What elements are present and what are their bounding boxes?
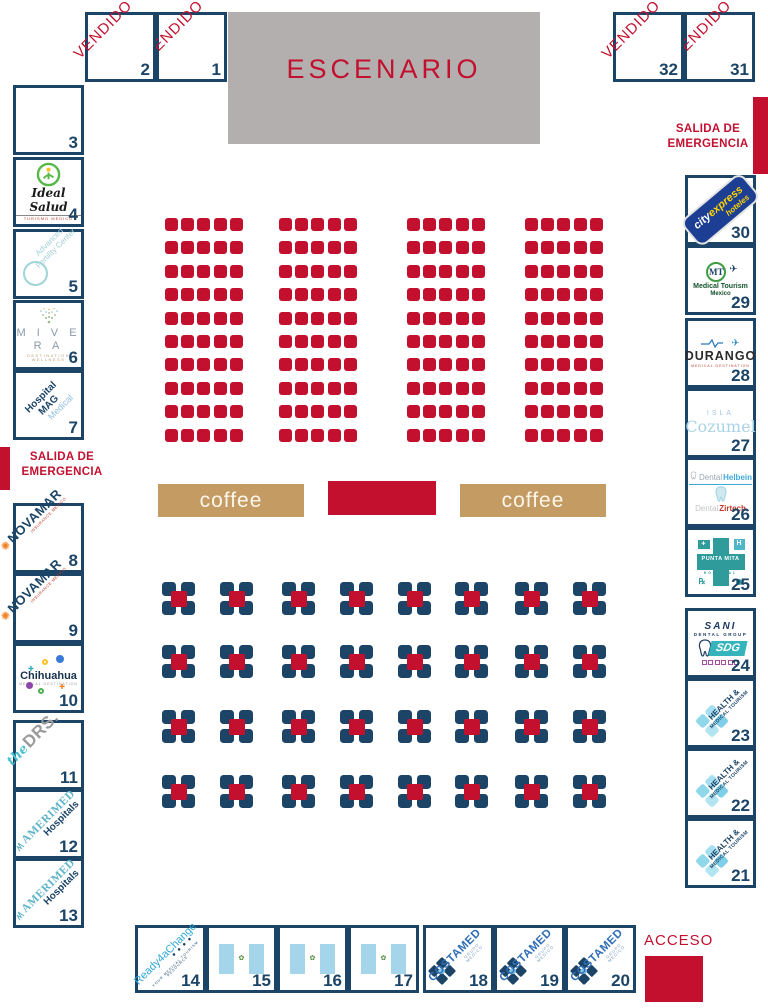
seat: [557, 405, 570, 418]
table-cluster: [455, 775, 488, 808]
seat: [439, 335, 452, 348]
seat: [557, 382, 570, 395]
seat: [590, 335, 603, 348]
booth-number: 19: [540, 971, 559, 991]
seat: [230, 405, 243, 418]
seat: [439, 288, 452, 301]
seat: [311, 241, 324, 254]
booth-18: COSTAMEDGRUPO MEDICO18: [423, 925, 494, 993]
seat: [456, 218, 469, 231]
exhibitor-name: Advanced Fertility Center: [27, 220, 79, 272]
seat: [456, 241, 469, 254]
table-cluster: [515, 645, 548, 678]
booth-13: AMERIMEDHospitals13: [13, 858, 84, 928]
hospital-mag-logo: Hospital MAGMedical: [3, 359, 94, 450]
seat: [328, 241, 341, 254]
table: [349, 719, 365, 735]
seat: [541, 382, 554, 395]
table: [524, 654, 540, 670]
seat: [311, 218, 324, 231]
booth-10: ✚✚ChihuahuaMEDICAL DESTINATION10: [13, 643, 84, 713]
seat: [557, 358, 570, 371]
seat: [456, 265, 469, 278]
table: [407, 719, 423, 735]
seat: [541, 265, 554, 278]
seat: [279, 218, 292, 231]
booth-number: 1: [212, 60, 221, 80]
seat: [165, 405, 178, 418]
exhibitor-name-2: Helbein: [723, 473, 752, 482]
seat: [311, 382, 324, 395]
seat: [541, 405, 554, 418]
table: [582, 654, 598, 670]
seat: [590, 241, 603, 254]
seating-block: [165, 218, 243, 442]
exhibitor-name-3: Dental: [695, 504, 718, 513]
exhibitor-name: PUNTA MITA: [697, 556, 745, 562]
booth-number: 7: [69, 418, 78, 438]
seat: [279, 405, 292, 418]
seat: [590, 358, 603, 371]
seating-block: [279, 218, 357, 442]
seat: [197, 382, 210, 395]
seat: [407, 312, 420, 325]
seat: [181, 241, 194, 254]
seat: [295, 405, 308, 418]
table-cluster: [340, 710, 373, 743]
seat: [574, 265, 587, 278]
seat: [197, 312, 210, 325]
table: [291, 591, 307, 607]
seat: [456, 358, 469, 371]
seat: [407, 405, 420, 418]
seat: [328, 265, 341, 278]
table-cluster: [162, 775, 195, 808]
yellow-ring-icon: [42, 659, 48, 665]
seat: [328, 358, 341, 371]
seat: [230, 358, 243, 371]
seat: [472, 335, 485, 348]
seat: [557, 429, 570, 442]
booth-23: HEALTH &MEDICAL TOURISM23: [685, 678, 756, 748]
seat: [525, 288, 538, 301]
seat: [197, 241, 210, 254]
booth-number: 20: [611, 971, 630, 991]
seat: [311, 288, 324, 301]
seat: [328, 312, 341, 325]
costamed-logo: COSTAMEDGRUPO MEDICO: [556, 914, 646, 1004]
seat: [407, 358, 420, 371]
seat: [525, 382, 538, 395]
access-entrance-block: [645, 956, 703, 1002]
seat: [439, 241, 452, 254]
seat: [525, 335, 538, 348]
seat: [230, 241, 243, 254]
table-cluster: [573, 582, 606, 615]
seat: [472, 218, 485, 231]
access-label: ACCESO: [644, 932, 704, 949]
seat: [181, 405, 194, 418]
seat: [456, 288, 469, 301]
booth-31: VENDIDO31: [684, 12, 755, 82]
seat: [279, 241, 292, 254]
seat: [407, 288, 420, 301]
seat: [525, 312, 538, 325]
teal-plus-icon: ✚: [28, 666, 34, 674]
table: [291, 719, 307, 735]
table-cluster: [340, 775, 373, 808]
seat: [230, 288, 243, 301]
vendido-label: VENDIDO: [599, 0, 664, 63]
seat: [344, 335, 357, 348]
exhibitor-name: Cozumel: [685, 418, 755, 436]
guatemala-flag-icon: ✿: [290, 944, 336, 974]
table: [582, 591, 598, 607]
emergency-exit-line2: EMERGENCIA: [668, 138, 749, 150]
rx-icon: ℞: [699, 577, 706, 586]
booth-number: 6: [69, 348, 78, 368]
seat: [456, 405, 469, 418]
booth-number: 12: [59, 837, 78, 857]
exhibitor-name: DURANGO: [685, 349, 757, 363]
table-cluster: [515, 775, 548, 808]
seat: [214, 241, 227, 254]
seat: [472, 288, 485, 301]
booth-9: ✺NOVAMARINSURANCE MEXICO9: [13, 573, 84, 643]
seat: [311, 312, 324, 325]
seat: [456, 382, 469, 395]
table-cluster: [455, 582, 488, 615]
table: [464, 591, 480, 607]
emergency-exit-label-left: SALIDA DE EMERGENCIA: [14, 450, 110, 480]
seat: [311, 335, 324, 348]
table-cluster: [162, 645, 195, 678]
booth-number: 28: [731, 366, 750, 386]
seat: [590, 405, 603, 418]
table: [407, 591, 423, 607]
ambulance-icon: ✚: [698, 540, 710, 549]
seat: [230, 382, 243, 395]
seat: [181, 429, 194, 442]
booth-16: ✿16: [277, 925, 348, 993]
seat: [590, 265, 603, 278]
coffee-bar-left: coffee: [158, 484, 304, 517]
seat: [590, 312, 603, 325]
seat: [344, 241, 357, 254]
seat: [423, 265, 436, 278]
table-cluster: [515, 710, 548, 743]
booth-22: HEALTH &MEDICAL TOURISM22: [685, 748, 756, 818]
seat: [181, 312, 194, 325]
seat: [279, 358, 292, 371]
seat: [574, 218, 587, 231]
seat: [541, 312, 554, 325]
seat: [344, 358, 357, 371]
seat: [439, 218, 452, 231]
booth-number: 25: [731, 575, 750, 595]
tooth-icon: [712, 485, 730, 503]
seat: [541, 218, 554, 231]
booth-20: COSTAMEDGRUPO MEDICO20: [565, 925, 636, 993]
seat: [328, 382, 341, 395]
seat: [311, 265, 324, 278]
seat: [214, 405, 227, 418]
table: [291, 784, 307, 800]
seat: [295, 312, 308, 325]
booth-number: 22: [731, 796, 750, 816]
seating-block: [525, 218, 603, 442]
seat: [407, 429, 420, 442]
seat: [525, 241, 538, 254]
seat: [165, 218, 178, 231]
blue-dot-icon: [56, 655, 64, 663]
table-cluster: [220, 775, 253, 808]
central-station-block: [328, 481, 436, 515]
amerimed-logo: AMERIMEDHospitals: [3, 847, 94, 938]
emergency-exit-line1: SALIDA DE: [30, 451, 94, 463]
table-cluster: [282, 775, 315, 808]
seat: [165, 382, 178, 395]
seat: [439, 312, 452, 325]
seat: [439, 382, 452, 395]
seat: [165, 335, 178, 348]
table-cluster: [455, 645, 488, 678]
seat: [525, 429, 538, 442]
table-cluster: [515, 582, 548, 615]
table-cluster: [398, 582, 431, 615]
seat: [439, 265, 452, 278]
booth-number: 8: [69, 551, 78, 571]
seat: [525, 358, 538, 371]
seat: [328, 288, 341, 301]
table: [171, 719, 187, 735]
emergency-exit-line2: EMERGENCIA: [22, 466, 103, 478]
seat: [407, 241, 420, 254]
seat: [279, 288, 292, 301]
booth-21: HEALTH &MEDICAL TOURISM21: [685, 818, 756, 888]
table: [582, 784, 598, 800]
emergency-exit-label-right: SALIDA DE EMERGENCIA: [664, 122, 752, 152]
seat: [295, 358, 308, 371]
table-cluster: [220, 710, 253, 743]
booth-number: 9: [69, 621, 78, 641]
table-cluster: [162, 582, 195, 615]
seat: [181, 382, 194, 395]
exhibitor-name: SANI: [705, 621, 737, 633]
table-cluster: [162, 710, 195, 743]
seat: [214, 358, 227, 371]
seat: [279, 265, 292, 278]
sdg-mark: SDG: [709, 641, 748, 656]
plane-icon: ✈: [731, 338, 739, 350]
seat: [165, 429, 178, 442]
guatemala-flag-icon: ✿: [219, 944, 265, 974]
seat: [328, 429, 341, 442]
seat: [181, 218, 194, 231]
seat: [590, 288, 603, 301]
booth-32: VENDIDO32: [613, 12, 684, 82]
table-cluster: [282, 645, 315, 678]
seat: [344, 265, 357, 278]
booth-number: 17: [394, 971, 413, 991]
seat: [165, 265, 178, 278]
seat: [165, 312, 178, 325]
table-cluster: [220, 645, 253, 678]
seat: [295, 265, 308, 278]
seat: [574, 312, 587, 325]
seat: [472, 312, 485, 325]
booth-14: Ready4aChange● ● ● ●YOUR MEDICAL TOURISM…: [135, 925, 206, 993]
seat: [407, 218, 420, 231]
seat: [295, 241, 308, 254]
seat: [423, 429, 436, 442]
table: [349, 784, 365, 800]
booth-4: Ideal SaludTURISMO MEDICO4: [13, 157, 84, 227]
seat: [181, 288, 194, 301]
seat: [456, 312, 469, 325]
table-cluster: [398, 645, 431, 678]
seat: [197, 429, 210, 442]
seat: [439, 358, 452, 371]
seat: [279, 312, 292, 325]
seating-block: [407, 218, 485, 442]
booth-7: Hospital MAGMedical7: [13, 370, 84, 440]
table: [464, 784, 480, 800]
tooth-icon: [689, 471, 698, 480]
table-cluster: [282, 582, 315, 615]
floor-plan: ESCENARIO SALIDA DE EMERGENCIA SALIDA DE…: [0, 0, 768, 1008]
table: [407, 784, 423, 800]
booth-number: 31: [730, 60, 749, 80]
hospital-h-mark: H: [734, 539, 745, 550]
seat: [423, 382, 436, 395]
booth-15: ✿15: [206, 925, 277, 993]
booth-24: SANIDENTAL GROUPSDG24: [685, 608, 756, 678]
seat: [214, 288, 227, 301]
table: [229, 591, 245, 607]
coffee-label: coffee: [200, 489, 263, 513]
booth-28: ✈DURANGOMEDICAL DESTINATION28: [685, 318, 756, 388]
seat: [423, 335, 436, 348]
table-cluster: [455, 710, 488, 743]
seat: [181, 265, 194, 278]
seat: [525, 405, 538, 418]
seat: [230, 429, 243, 442]
heartbeat-icon: [701, 338, 729, 348]
seat: [279, 429, 292, 442]
booth-number: 11: [60, 768, 78, 788]
booth-number: 10: [59, 691, 78, 711]
booth-number: 24: [731, 656, 750, 676]
ready4achange-logo: Ready4aChange● ● ● ●YOUR MEDICAL TOURISM…: [126, 914, 216, 1004]
emergency-exit-line1: SALIDA DE: [676, 123, 740, 135]
seat: [165, 288, 178, 301]
booth-number: 13: [59, 906, 78, 926]
seat: [557, 241, 570, 254]
seat: [214, 382, 227, 395]
seat: [295, 218, 308, 231]
seat: [541, 241, 554, 254]
seat: [472, 382, 485, 395]
seat: [214, 265, 227, 278]
seat: [214, 429, 227, 442]
seat: [279, 382, 292, 395]
booth-number: 18: [469, 971, 488, 991]
table: [229, 719, 245, 735]
exhibitor-name: Medical Tourism: [693, 283, 748, 291]
seat: [328, 218, 341, 231]
emergency-exit-bar-right: [753, 97, 768, 174]
exhibitor-name: NOVAMAR: [5, 487, 64, 546]
stage-label: ESCENARIO: [286, 54, 481, 144]
table: [349, 591, 365, 607]
table-cluster: [398, 775, 431, 808]
booth-number: 5: [69, 277, 78, 297]
seat: [423, 218, 436, 231]
seat: [197, 405, 210, 418]
seat: [574, 358, 587, 371]
seat: [590, 429, 603, 442]
seat: [295, 382, 308, 395]
plane-icon: ✈: [729, 264, 737, 276]
coffee-label: coffee: [502, 489, 565, 513]
booth-2: VENDIDO2: [85, 12, 156, 82]
seat: [165, 358, 178, 371]
table: [464, 654, 480, 670]
exhibitor-subtitle: DENTAL GROUP: [694, 632, 748, 637]
table-cluster: [573, 710, 606, 743]
table: [407, 654, 423, 670]
seat: [295, 288, 308, 301]
seat: [197, 265, 210, 278]
seat: [472, 429, 485, 442]
table-cluster: [573, 775, 606, 808]
booth-number: 26: [731, 505, 750, 525]
booth-5: Advanced Fertility Center5: [13, 229, 84, 299]
seat: [197, 335, 210, 348]
table-cluster: [220, 582, 253, 615]
seat: [344, 288, 357, 301]
seat: [423, 312, 436, 325]
seat: [574, 382, 587, 395]
seat: [423, 288, 436, 301]
seat: [439, 429, 452, 442]
seat: [541, 288, 554, 301]
booth-3: 3: [13, 85, 84, 155]
exhibitor-name: DRS.: [20, 709, 63, 752]
table: [582, 719, 598, 735]
seat: [407, 382, 420, 395]
table: [229, 784, 245, 800]
seat: [541, 429, 554, 442]
seat: [181, 335, 194, 348]
seat: [557, 265, 570, 278]
table: [291, 654, 307, 670]
booth-29: MT✈Medical TourismMexico29: [685, 245, 756, 315]
seat: [311, 429, 324, 442]
booth-number: 14: [181, 971, 200, 991]
booth-number: 32: [659, 60, 678, 80]
booth-number: 27: [731, 436, 750, 456]
seat: [295, 429, 308, 442]
booth-30: cityexpresshoteles30: [685, 175, 756, 245]
seat: [344, 405, 357, 418]
seat: [311, 405, 324, 418]
vendido-label: VENDIDO: [71, 0, 136, 63]
table: [171, 654, 187, 670]
seat: [407, 335, 420, 348]
seat: [557, 312, 570, 325]
